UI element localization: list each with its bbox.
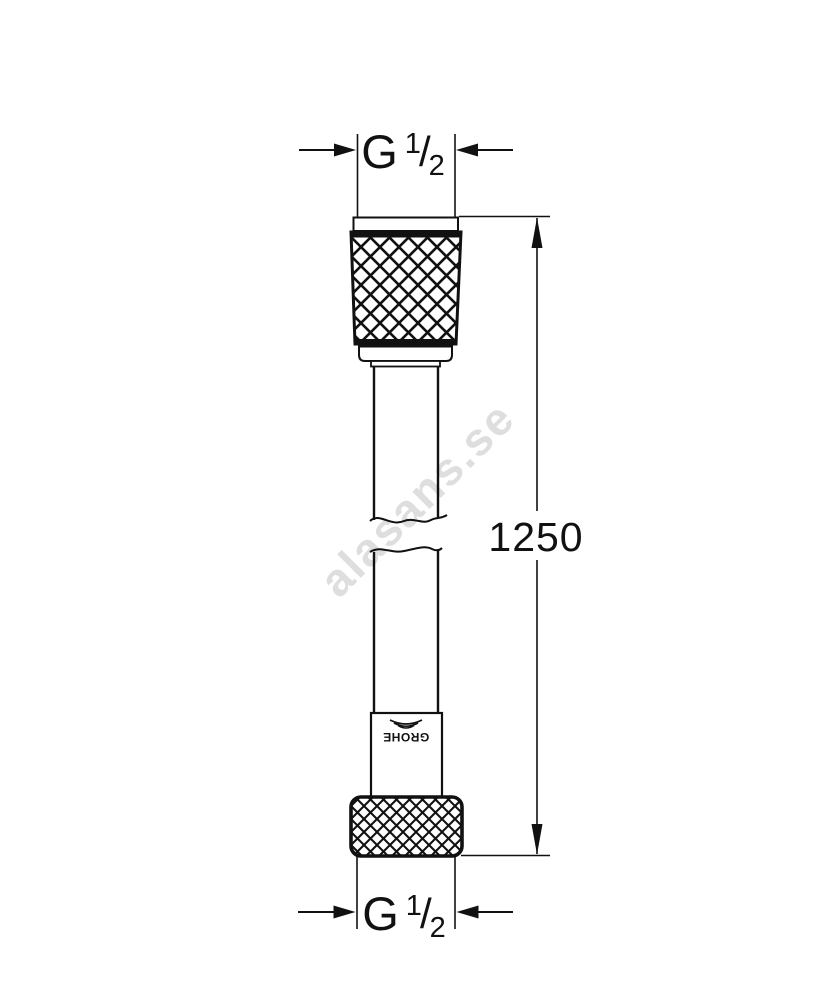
grohe-logo: GROHE bbox=[382, 719, 430, 743]
length-dim-label: 1250 bbox=[488, 517, 583, 558]
bottom-thread-dim-label: G1/2 bbox=[362, 890, 446, 937]
bottom-dim-arrow-left-icon bbox=[334, 906, 356, 919]
hose-body bbox=[370, 366, 447, 713]
length-dim-arrow-up-icon bbox=[532, 218, 543, 249]
thread-size-letter: G bbox=[361, 125, 398, 178]
thread-size-letter: G bbox=[362, 887, 399, 940]
bottom-dim-arrow-right-icon bbox=[457, 906, 479, 919]
break-line-upper bbox=[370, 515, 447, 522]
grohe-wave-icon bbox=[387, 719, 425, 730]
top-collar bbox=[359, 347, 452, 362]
thread-fraction-denominator: 2 bbox=[429, 150, 445, 182]
technical-drawing-page: alasans.se bbox=[0, 0, 834, 1000]
top-dim-arrow-left-icon bbox=[334, 144, 356, 157]
length-dim-arrow-down-icon bbox=[532, 824, 543, 855]
break-line-lower bbox=[370, 547, 442, 552]
top-fitting bbox=[351, 218, 461, 367]
bottom-knurled-nut bbox=[351, 797, 462, 856]
grohe-logo-text: GROHE bbox=[382, 731, 430, 743]
top-knurled-nut bbox=[351, 232, 461, 344]
top-dim-arrow-right-icon bbox=[456, 144, 478, 157]
thread-fraction-denominator: 2 bbox=[430, 912, 446, 944]
top-thread-dim-label: G1/2 bbox=[361, 128, 445, 175]
